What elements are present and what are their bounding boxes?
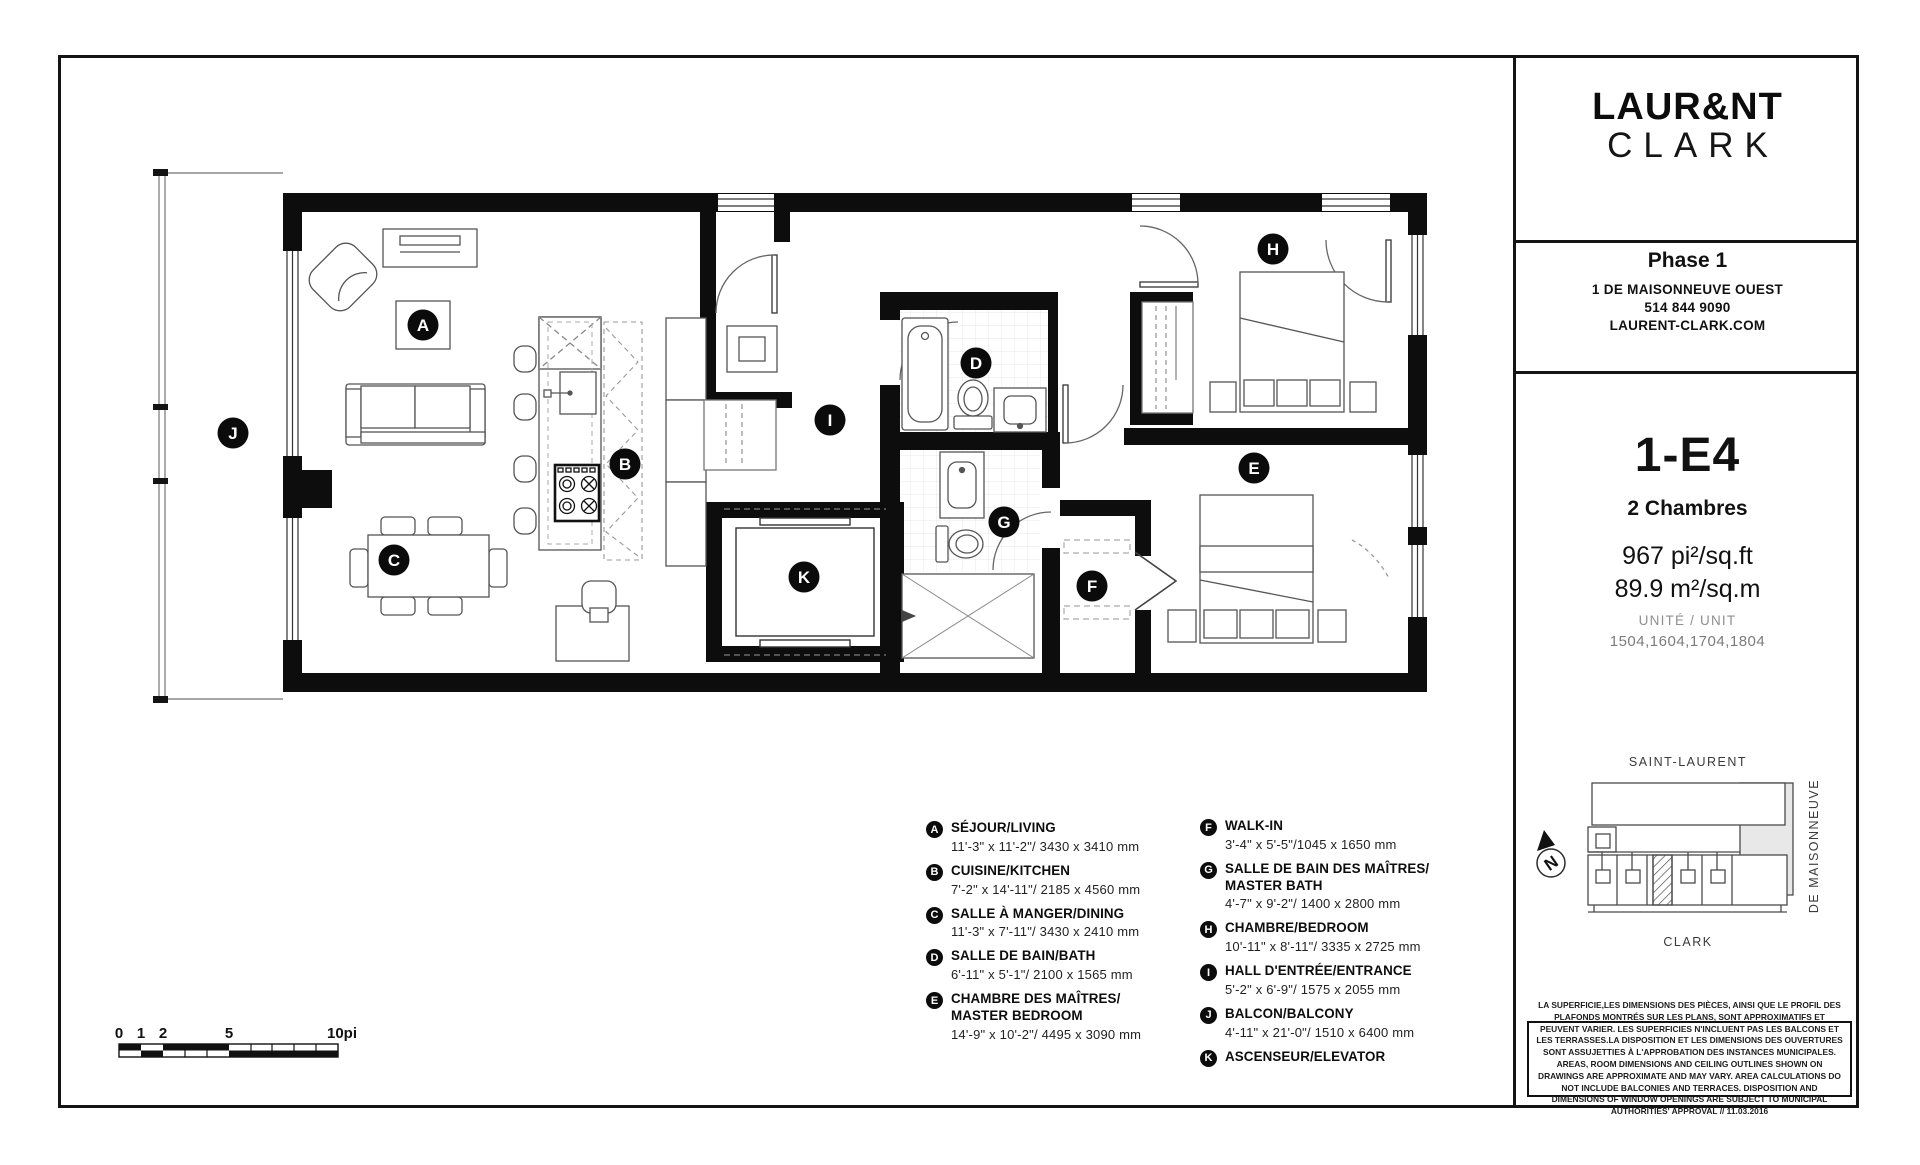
svg-text:K: K [798, 568, 811, 587]
left-wall-window [287, 251, 298, 640]
scale-label-10: 10pi [327, 1025, 357, 1042]
master-bedroom-furniture [1168, 495, 1390, 643]
tv-console [383, 229, 477, 267]
compass: N [1537, 830, 1565, 877]
room-marker-c: C [379, 545, 410, 576]
svg-text:H: H [1267, 240, 1279, 259]
hall-closet [704, 400, 776, 470]
svg-text:D: D [970, 354, 982, 373]
svg-text:B: B [619, 455, 631, 474]
bathtub [902, 318, 948, 430]
scale-label-1: 1 [137, 1025, 145, 1042]
street-label-right: DE MAISONNEUVE [1807, 779, 1821, 913]
scale-label-0: 0 [115, 1025, 123, 1042]
armchair [303, 237, 382, 316]
floor-plan: A B C D E F G H I J K [153, 169, 1427, 703]
compass-north-label: N [1541, 852, 1562, 875]
room-marker-i: I [815, 405, 846, 436]
svg-text:E: E [1248, 459, 1259, 478]
bar-stools [514, 346, 536, 534]
bedroom-closet [1142, 302, 1193, 413]
svg-text:J: J [228, 424, 237, 443]
walkin-door [1135, 552, 1176, 610]
room-marker-e: E [1239, 453, 1270, 484]
window-swing-dashes [1352, 540, 1390, 580]
room-marker-a: A [408, 310, 439, 341]
shower [902, 574, 1034, 658]
bedroom-h-door [1140, 226, 1198, 287]
svg-text:I: I [828, 411, 833, 430]
tall-cabinets [666, 318, 706, 566]
entry-door [716, 255, 777, 313]
scale-label-5: 5 [225, 1025, 233, 1042]
room-marker-f: F [1077, 571, 1108, 602]
bed-h [1210, 272, 1376, 412]
desk [556, 581, 629, 661]
scale-bar: 0 1 2 5 10pi [115, 1025, 357, 1057]
map-buildings [1588, 783, 1793, 912]
room-marker-g: G [989, 507, 1020, 538]
stove [555, 465, 599, 521]
svg-text:G: G [997, 513, 1010, 532]
street-label-bottom: CLARK [1663, 935, 1712, 949]
room-marker-k: K [789, 562, 820, 593]
room-marker-j: J [218, 418, 249, 449]
upper-cabinets-dashed [604, 322, 642, 560]
scale-label-2: 2 [159, 1025, 167, 1042]
master-vanity [940, 452, 984, 518]
svg-text:C: C [388, 551, 400, 570]
sofa [346, 384, 485, 445]
site-map: SAINT-LAURENT DE MAISONNEUVE CLARK [1537, 755, 1821, 949]
compass-arrow-icon [1537, 830, 1555, 851]
room-marker-d: D [961, 348, 992, 379]
street-label-top: SAINT-LAURENT [1629, 755, 1747, 769]
drawing-layer: A B C D E F G H I J K 0 1 2 5 10pi [0, 0, 1920, 1165]
vanity [994, 388, 1046, 432]
entry-appliance [727, 326, 777, 372]
svg-text:F: F [1087, 577, 1097, 596]
room-marker-b: B [610, 449, 641, 480]
suite-door [1063, 385, 1123, 443]
map-unit-highlight [1653, 855, 1672, 905]
svg-text:A: A [417, 316, 429, 335]
kitchen-furniture [514, 317, 706, 566]
dining-table [350, 517, 507, 615]
room-marker-h: H [1258, 234, 1289, 265]
bed-e [1168, 495, 1346, 643]
